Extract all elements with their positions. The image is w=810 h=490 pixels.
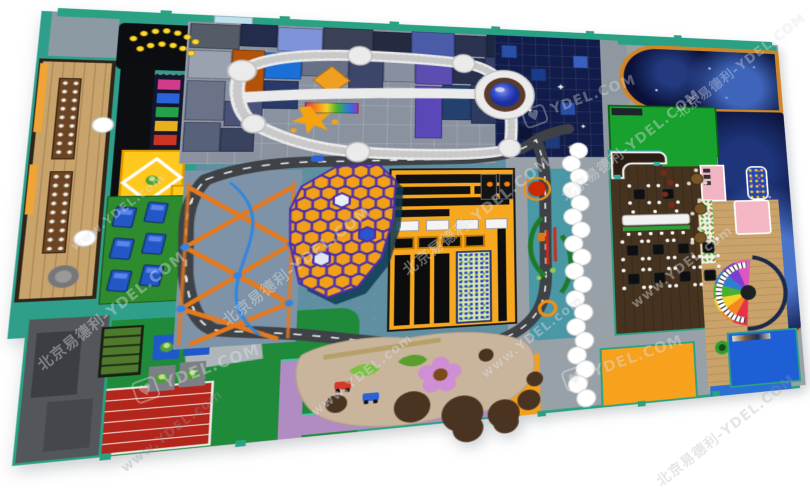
watermark-text: www.YDEL.com [119, 387, 226, 476]
watermark-text: www.YDEL.com [479, 293, 586, 382]
watermark-text: ♥ YDEL.COM [560, 329, 686, 393]
watermark-text: 北京易德利-YDEL.COM [652, 369, 799, 490]
watermark-text: www.YDEL.com [309, 331, 416, 420]
floorplan-stage: ✦✦✦✦✦ [0, 0, 810, 490]
watermark-text: 北京易德利-YDEL.COM [398, 151, 555, 280]
watermark-text: 北京易德利-YDEL.COM [218, 201, 375, 330]
watermark-text: 北京易德利-YDEL.COM [557, 84, 704, 205]
watermark-layer: 北京易德利-YDEL.COMwww.YDEL.comwww.YDEL.com北京… [0, 0, 810, 490]
watermark-text: 北京易德利-YDEL.COM [33, 246, 190, 375]
watermark-text: www.YDEL.com [68, 171, 168, 253]
watermark-text: 北京易德利-YDEL.COM [671, 8, 809, 122]
watermark-text: ♥ YDEL.COM [130, 338, 263, 405]
watermark-text: ♥ YDEL.COM [520, 70, 639, 130]
watermark-text: www.YDEL.com [629, 223, 736, 312]
